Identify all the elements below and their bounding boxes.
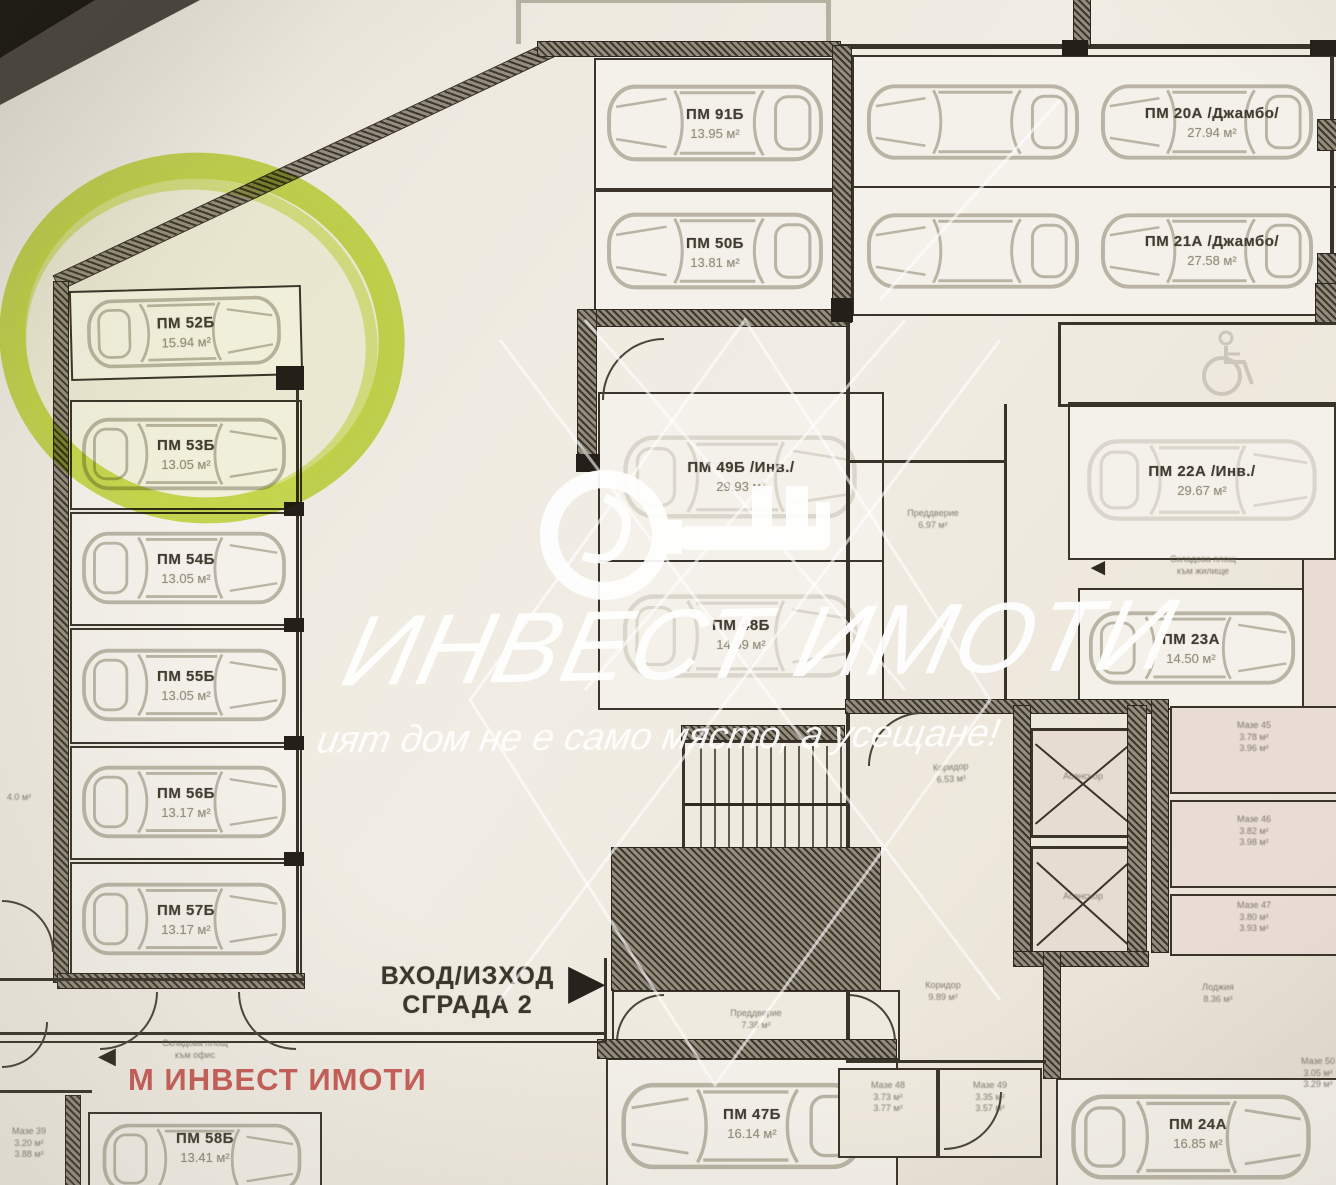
stall-pm-56b: ПМ 56Б13.17 м² (70, 746, 302, 860)
pillar (284, 736, 304, 750)
pillar (284, 502, 304, 516)
stall-label: ПМ 22А /Инв./ (1070, 463, 1334, 480)
stall-label: ПМ 20А /Джамбо/ (1094, 104, 1330, 121)
entrance-line2: СГРАДА 2 (360, 991, 575, 1020)
agency-red-text: М ИНВЕСТ ИМОТИ (128, 1062, 427, 1098)
note-line: към офис (120, 1050, 270, 1062)
stall-area: 13.95 м² (596, 126, 834, 141)
storage-label: 3.82 м² (1172, 826, 1336, 838)
storage-label: 3.93 м² (1172, 923, 1336, 935)
stall-pm-53b: ПМ 53Б13.05 м² (70, 400, 302, 510)
stall-pm-21a-jumbo: ПМ 21А /Джамбо/27.58 м² (852, 186, 1336, 316)
wall-stub (1318, 254, 1336, 288)
wall-band (1152, 700, 1168, 952)
stall-label: ПМ 58Б (90, 1129, 320, 1146)
room-area: 8.36 м² (1158, 994, 1278, 1006)
elevator-label: Асансьор (1033, 771, 1133, 783)
corridor-core-label: Коридор 6.53 м² (895, 759, 1006, 788)
left-outer-wall (54, 282, 68, 982)
stall-pm-50b: ПМ 50Б13.81 м² (594, 190, 836, 315)
diagonal-wall (54, 42, 556, 290)
road-line (0, 1041, 606, 1043)
upper-floor-line (826, 0, 831, 44)
core-wall-band (1128, 706, 1146, 964)
stall-label: ПМ 53Б (72, 437, 300, 454)
storage-label: 3.29 м² (1298, 1079, 1336, 1091)
edge-left-note: 4.0 м² (0, 792, 38, 804)
stall-area: 13.41 м² (90, 1149, 320, 1164)
note-line: Складова площ (1118, 554, 1288, 566)
entrance-line1: ВХОД/ИЗХОД (360, 962, 575, 991)
storage-label: 3.96 м² (1172, 743, 1336, 755)
room-name: Лоджия (1158, 982, 1278, 994)
handicap-row-line (1058, 322, 1061, 406)
storage-label: Мазе 49 (940, 1080, 1040, 1092)
storage-room-right: Мазе 47 3.80 м² 3.93 м² (1170, 894, 1336, 956)
stall-label: ПМ 21А /Джамбо/ (1094, 233, 1330, 250)
edge-right-label: Мазе 50 3.05 м² 3.29 м² (1298, 1056, 1336, 1091)
wall-below-50b (578, 310, 846, 326)
core-wall-band (1044, 952, 1060, 1078)
storage-label: Мазе 47 (1172, 900, 1336, 912)
stall-area: 13.17 м² (72, 805, 300, 820)
room-area: 7.38 м² (614, 1020, 898, 1032)
pillar (1310, 40, 1336, 56)
pillar (284, 852, 304, 866)
door-arc (602, 338, 664, 400)
stall-pm-20a-jumbo: ПМ 20А /Джамбо/27.94 м² (852, 55, 1336, 190)
elevator-label: Асансьор (1033, 891, 1133, 903)
stair-stringer (685, 803, 847, 806)
wall-stub (66, 1096, 80, 1185)
wall-line (846, 1060, 1046, 1063)
stall-area: 27.58 м² (1094, 253, 1330, 268)
note-line: Складова площ (120, 1038, 270, 1050)
wall-band (58, 974, 304, 988)
edge-left-storage: Мазе 39 3.20 м² 3.88 м² (0, 1126, 58, 1161)
storage-label: 3.05 м² (1298, 1068, 1336, 1080)
stall-label: ПМ 49Б /Инв./ (600, 459, 882, 476)
room-name: Коридор (888, 980, 998, 992)
stall-area: 29.93 м² (600, 479, 882, 494)
stall-area: 13.17 м² (72, 922, 300, 937)
wall-stub-left-core (578, 310, 596, 468)
core-wall (846, 460, 1006, 463)
storage-label: 3.20 м² (0, 1138, 58, 1150)
door-arc (2, 1022, 48, 1068)
upper-floor-line (516, 0, 521, 44)
mid-vertical-wall (833, 46, 851, 322)
core-wall-band (1014, 706, 1030, 952)
core-wall-band (1014, 952, 1148, 966)
storage-label: Мазе 39 (0, 1126, 58, 1138)
vestibule-core-label: Преддверие 6.97 м² (878, 508, 988, 531)
elevator-shaft: Асансьор (1030, 846, 1136, 960)
stall-area: 13.81 м² (596, 254, 834, 269)
stall-area: 27.94 м² (1094, 124, 1330, 139)
storage-room: Мазе 48 3.73 м² 3.77 м² (838, 1068, 938, 1158)
storage-label: 3.88 м² (0, 1149, 58, 1161)
stall-pm-22a-inv: ПМ 22А /Инв./29.67 м² (1068, 402, 1336, 560)
stall-label: ПМ 54Б (72, 551, 300, 568)
storage-label: 3.73 м² (840, 1092, 936, 1104)
loggia-label: Лоджия 8.36 м² (1158, 982, 1278, 1005)
note-left: Складова площ към офис (120, 1038, 270, 1061)
storage-room-right: Мазе 45 3.78 м² 3.96 м² (1170, 706, 1336, 794)
side-room (1302, 558, 1336, 708)
handicap-row-line (1058, 322, 1336, 325)
stall-area: 13.05 м² (72, 688, 300, 703)
pillar (1062, 40, 1088, 56)
stall-pm-55b: ПМ 55Б13.05 м² (70, 628, 302, 744)
elevator-shaft: Асансьор (1030, 728, 1136, 838)
stall-pm-52b: ПМ 52Б15.94 м² (69, 285, 303, 381)
stall-label: ПМ 50Б (596, 234, 834, 251)
storage-label: 3.98 м² (1172, 837, 1336, 849)
watermark-script-text: ИНВЕСТ ИМОТИ (333, 577, 1188, 709)
wall-stub (1318, 120, 1336, 150)
wheelchair-icon (1196, 330, 1258, 400)
room-name: Преддверие (878, 508, 988, 520)
arrow-left-icon: ◄ (92, 1042, 122, 1072)
wall-stub (1316, 284, 1336, 322)
corridor-south-label: Коридор 9.89 м² (888, 980, 998, 1003)
pillar (576, 454, 600, 472)
stall-pm-58b: ПМ 58Б13.41 м² (88, 1112, 322, 1185)
left-stalls-right-line (296, 386, 299, 978)
stall-pm-91b: ПМ 91Б13.95 м² (594, 58, 836, 190)
storage-room-right: Мазе 46 3.82 м² 3.98 м² (1170, 800, 1336, 888)
wall-line (0, 1090, 92, 1093)
storage-label: 3.78 м² (1172, 732, 1336, 744)
entrance-label: ВХОД/ИЗХОД СГРАДА 2 (360, 962, 575, 1020)
handicap-row-line (1058, 404, 1336, 407)
stall-area: 13.05 м² (72, 457, 300, 472)
storage-label: 3.77 м² (840, 1103, 936, 1115)
stall-area: 16.85 м² (1058, 1135, 1336, 1150)
storage-label: 3.80 м² (1172, 912, 1336, 924)
wall-line (0, 978, 304, 981)
core-wall-band (846, 700, 1164, 713)
entrance-arrow-icon: ► (556, 952, 617, 1014)
road-line (0, 1032, 606, 1035)
stall-pm-54b: ПМ 54Б13.05 м² (70, 512, 302, 626)
note-line: 4.0 м² (0, 792, 38, 804)
stall-pm-57b: ПМ 57Б13.17 м² (70, 862, 302, 978)
floor-plan-scan: ПМ 52Б15.94 м² ПМ 53Б13.05 м² ПМ 54Б13.0… (0, 0, 1336, 1185)
storage-label: Мазе 50 (1298, 1056, 1336, 1068)
pillar (276, 366, 304, 390)
arrow-left-icon: ◄ (1086, 556, 1110, 580)
door-arc (2, 900, 54, 952)
pillar (831, 298, 853, 322)
storage-label: Мазе 46 (1172, 814, 1336, 826)
top-wall (538, 42, 840, 56)
stall-area: 29.67 м² (1070, 483, 1334, 498)
wall-band (598, 1040, 896, 1058)
storage-label: Мазе 48 (840, 1080, 936, 1092)
storage-label: Мазе 45 (1172, 720, 1336, 732)
stall-label: ПМ 55Б (72, 668, 300, 685)
pillar (284, 618, 304, 632)
stall-label: ПМ 56Б (72, 785, 300, 802)
stall-pm-49b-inv: ПМ 49Б /Инв./29.93 м² (598, 392, 884, 562)
note-line: към жилище (1118, 566, 1288, 578)
stall-label: ПМ 91Б (596, 106, 834, 123)
room-area: 9.89 м² (888, 992, 998, 1004)
room-name: Преддверие (614, 1008, 898, 1020)
stall-label: ПМ 57Б (72, 902, 300, 919)
room-area: 6.97 м² (878, 520, 988, 532)
stall-pm-24a: ПМ 24А16.85 м² (1056, 1078, 1336, 1185)
watermark-slogan-text: ият дом не е само място, а усещане! (314, 712, 1003, 762)
storage-wall-block (612, 848, 880, 990)
upper-floor-line (518, 0, 830, 3)
stall-area: 13.05 м² (72, 571, 300, 586)
stall-label: ПМ 24А (1058, 1115, 1336, 1132)
